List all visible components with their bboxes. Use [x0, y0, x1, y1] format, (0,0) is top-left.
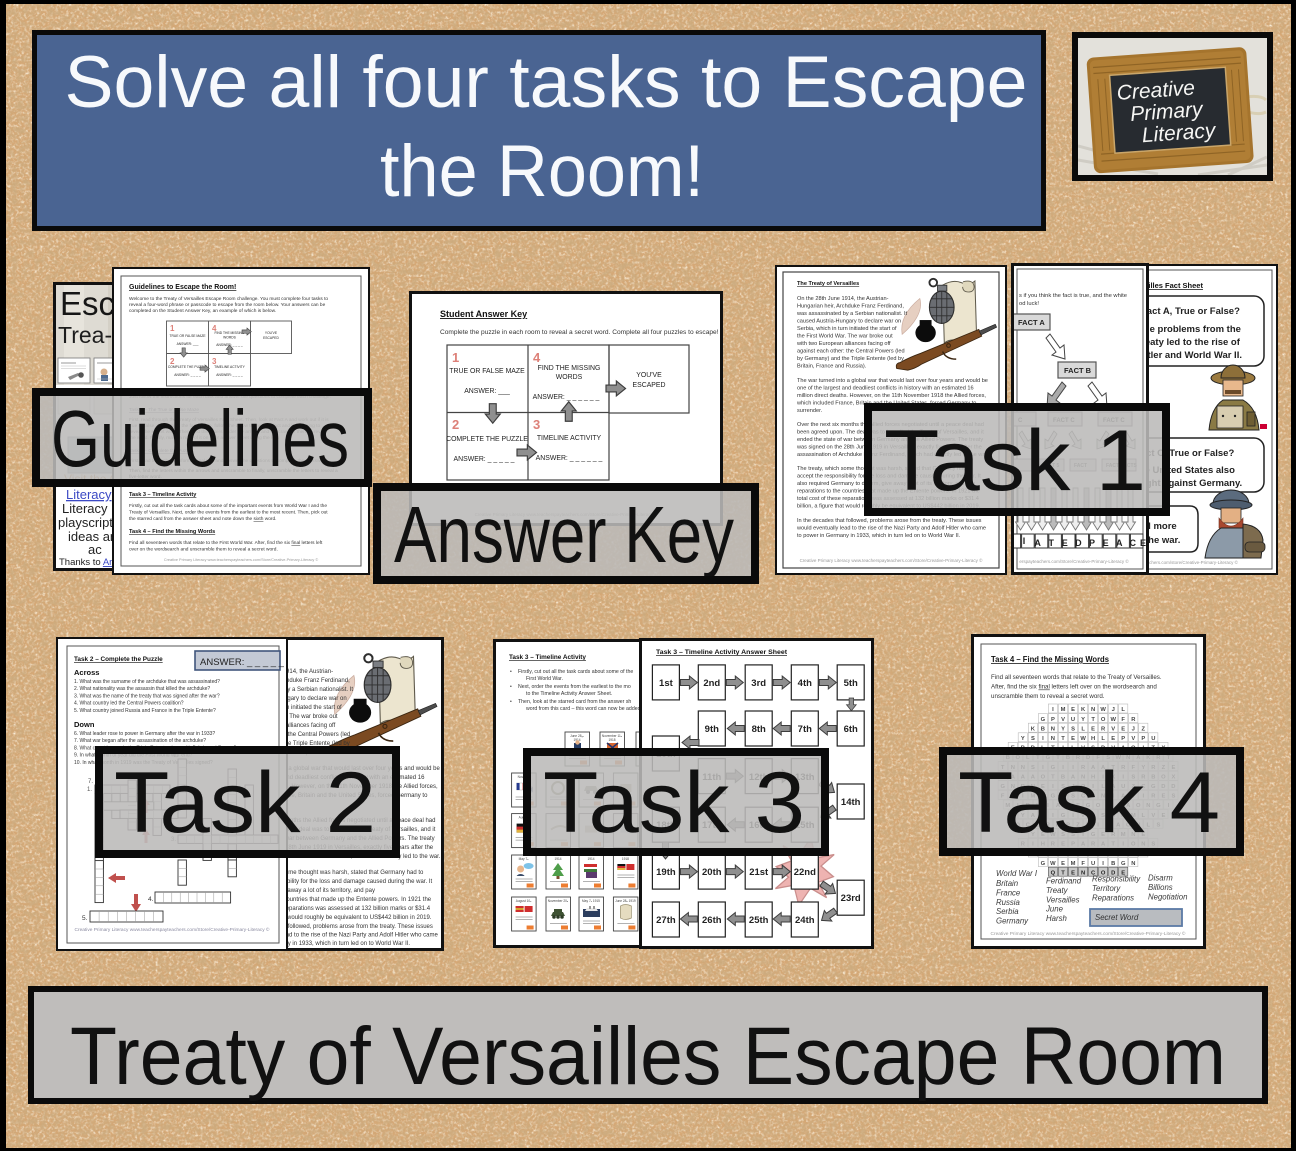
svg-text:Trea-: Trea-: [58, 322, 112, 348]
svg-text:would eventually lead to the r: would eventually lead to the rise of the…: [796, 526, 986, 532]
svg-text:May 7ₙ: May 7ₙ: [519, 857, 530, 861]
svg-text:1914: 1914: [587, 857, 594, 861]
svg-text:s if you think the fact is tru: s if you think the fact is true, and the…: [1019, 293, 1127, 299]
svg-text:D: D: [1075, 538, 1082, 548]
svg-text:to the Timeline Activity Answe: to the Timeline Activity Answer Sheet.: [526, 691, 612, 697]
svg-text:6th: 6th: [844, 724, 858, 735]
svg-text:Student Answer Key: Student Answer Key: [440, 309, 527, 319]
svg-text:Guidelines to Escape the Room!: Guidelines to Escape the Room!: [129, 284, 236, 291]
svg-text:Negotiation: Negotiation: [1148, 893, 1187, 902]
svg-text:7. What war began after the: 7. What war began after the assassinatio…: [74, 738, 206, 744]
svg-text:TIMELINE ACTIVITY: TIMELINE ACTIVITY: [537, 435, 602, 442]
svg-text:Disarm: Disarm: [1148, 874, 1173, 883]
svg-text:May 7ₙ 1915: May 7ₙ 1915: [582, 899, 600, 903]
svg-text:W: W: [1100, 707, 1106, 713]
svg-text:E: E: [1061, 861, 1065, 867]
svg-text:Creative Primary Literacy www.: Creative Primary Literacy www.teacherspa…: [800, 557, 984, 563]
svg-text:3rd: 3rd: [751, 678, 766, 689]
svg-text:A: A: [1034, 538, 1041, 548]
svg-text:6. What leader rose to power: 6. What leader rose to power in Germany …: [74, 731, 215, 737]
svg-text:P: P: [1141, 736, 1145, 742]
svg-text:B: B: [1111, 861, 1115, 867]
svg-text:the First World War. The war b: the First World War. The war broke out: [797, 334, 893, 340]
svg-text:Reparations: Reparations: [1092, 894, 1134, 903]
svg-text:d more: d more: [1145, 521, 1177, 532]
svg-text:od luck!: od luck!: [1019, 301, 1039, 307]
svg-text:E: E: [1071, 736, 1075, 742]
svg-text:with two European alliances fa: with two European alliances facing off: [796, 341, 891, 347]
svg-text:against each other: the Centra: against each other: the Central Powers (…: [797, 349, 905, 355]
svg-text:ANSWER: _ _ _ _ _: ANSWER: _ _ _ _ _: [454, 456, 515, 463]
svg-text:Esc: Esc: [60, 285, 115, 322]
svg-text:W: W: [1080, 736, 1086, 742]
svg-text:Treaty of Versailles. Next, or: Treaty of Versailles. Next, order the ev…: [129, 510, 328, 516]
svg-text:In the decades that followed,: In the decades that followed, problems a…: [797, 518, 982, 524]
svg-text:TRUE OR FALSE MAZE: TRUE OR FALSE MAZE: [169, 334, 206, 338]
svg-text:FIND THE MISSING: FIND THE MISSING: [538, 365, 601, 372]
svg-text:T: T: [1048, 538, 1054, 548]
svg-text:ANSWER: _ _ _ _ _ _: ANSWER: _ _ _ _ _ _: [536, 455, 603, 462]
svg-text:Britain, France and Russia).: Britain, France and Russia).: [797, 364, 867, 370]
svg-text:N: N: [1091, 707, 1095, 713]
svg-text:Task 2: Task 2: [114, 755, 376, 850]
svg-text:W: W: [1110, 717, 1116, 723]
svg-text:Complete the puzzle in each ro: Complete the puzzle in each room to reve…: [440, 329, 719, 336]
svg-text:Russia: Russia: [996, 898, 1020, 907]
svg-text:Territory: Territory: [1092, 884, 1121, 893]
svg-text:•: •: [510, 669, 512, 675]
svg-text:August 10ₙ: August 10ₙ: [516, 899, 532, 903]
svg-text:E: E: [1140, 538, 1146, 548]
svg-text:unscramble them to reveal a se: unscramble them to reveal a secret word.: [991, 693, 1105, 700]
svg-text:25th: 25th: [749, 915, 769, 926]
svg-text:over on the wordsearch and uns: over on the wordsearch and unscramble th…: [129, 547, 278, 553]
svg-text:Task 1: Task 1: [884, 413, 1146, 508]
svg-text:On the 28th June 1914, the Aus: On the 28th June 1914, the Austrian-: [797, 296, 889, 302]
svg-text:to power in Germany in 1933, w: to power in Germany in 1933, which in tu…: [797, 533, 961, 539]
svg-text:L: L: [1081, 726, 1085, 732]
svg-text:N: N: [1131, 861, 1135, 867]
svg-text:Billions: Billions: [1148, 883, 1173, 892]
svg-text:P: P: [1051, 717, 1055, 723]
svg-text:FACT B: FACT B: [1064, 366, 1092, 375]
svg-text:ANSWER: _ _ _ _ _: ANSWER: _ _ _ _ _: [200, 657, 285, 668]
svg-text:T: T: [1061, 870, 1065, 876]
svg-text:1: 1: [452, 350, 459, 365]
svg-text:3: 3: [533, 417, 540, 432]
svg-text:was assassinated by a Serbian: was assassinated by a Serbian nationalis…: [796, 311, 908, 317]
svg-text:5. What country joined Russi: 5. What country joined Russia and France…: [74, 708, 216, 714]
svg-text:Find all seventeen words that: Find all seventeen words that relate to …: [129, 540, 323, 546]
svg-text:I: I: [1023, 536, 1026, 546]
svg-text:Task 4: Task 4: [958, 755, 1220, 848]
svg-text:2: 2: [452, 417, 459, 432]
svg-text:1: 1: [170, 324, 175, 333]
svg-text:G: G: [1121, 861, 1126, 867]
svg-text:5.: 5.: [82, 915, 88, 922]
svg-text:ANSWER: ___: ANSWER: ___: [464, 388, 510, 395]
svg-text:21st: 21st: [749, 867, 769, 878]
svg-text:27th: 27th: [656, 915, 676, 926]
svg-text:•: •: [510, 699, 512, 705]
svg-text:WORDS: WORDS: [556, 374, 583, 381]
svg-text:million direct deaths. However: million direct deaths. However, on the 1…: [797, 393, 986, 399]
svg-text:The problems from the: The problems from the: [1138, 324, 1241, 335]
svg-text:June: June: [1045, 905, 1064, 914]
svg-text:S: S: [1071, 726, 1075, 732]
svg-text:Treaty of Versailles Escape Ro: Treaty of Versailles Escape Room: [70, 1011, 1226, 1102]
svg-text:E: E: [1091, 726, 1095, 732]
svg-text:Task 3: Task 3: [543, 756, 805, 848]
svg-text:Serbia, which in turn initiate: Serbia, which in turn initiated the star…: [797, 326, 897, 332]
svg-text:Responsibility: Responsibility: [1092, 875, 1141, 884]
svg-text:N: N: [1081, 870, 1085, 876]
svg-text:U: U: [1151, 736, 1155, 742]
svg-text:one of the largest and deadlie: one of the largest and deadliest conflic…: [797, 386, 974, 392]
svg-text:Y: Y: [1061, 726, 1065, 732]
svg-text:The war turned into a global w: The war turned into a global war that wo…: [797, 378, 988, 384]
svg-text:1918: 1918: [608, 738, 615, 742]
svg-text:L: L: [1101, 736, 1105, 742]
svg-text:20th: 20th: [702, 867, 722, 878]
svg-text:22nd: 22nd: [794, 867, 816, 878]
svg-text:Task 3 – Timeline Activity: Task 3 – Timeline Activity: [509, 654, 586, 661]
svg-text:M: M: [1061, 707, 1066, 713]
svg-text:Task 3 – Timeline Activity Ans: Task 3 – Timeline Activity Answer Sheet: [656, 649, 788, 656]
svg-text:4.: 4.: [148, 896, 154, 903]
svg-text:Find all seventeen words that: Find all seventeen words that relate to …: [991, 674, 1162, 681]
svg-text:Fact A, True or False?: Fact A, True or False?: [1141, 306, 1240, 317]
svg-text:eachers.com/store/Creative-Pri: eachers.com/store/Creative-Primary-Liter…: [1144, 559, 1239, 565]
svg-text:V: V: [1111, 726, 1115, 732]
svg-text:The Treaty of Versailles: The Treaty of Versailles: [797, 281, 859, 287]
svg-text:FIND THE MISSING: FIND THE MISSING: [215, 331, 245, 335]
svg-text:WORDS: WORDS: [223, 336, 236, 340]
svg-text:Task 2 – Complete the Puzzle: Task 2 – Complete the Puzzle: [74, 656, 163, 663]
svg-text:T: T: [1091, 717, 1095, 723]
svg-text:E: E: [1121, 726, 1125, 732]
svg-text:Hitler and World War II.: Hitler and World War II.: [1138, 350, 1242, 361]
svg-text:caused Austria-Hungary to decl: caused Austria-Hungary to declare war on: [797, 319, 901, 325]
svg-text:B: B: [1041, 726, 1045, 732]
svg-text:23rd: 23rd: [841, 893, 861, 904]
svg-text:J: J: [1112, 707, 1115, 713]
svg-text:E: E: [1062, 538, 1068, 548]
svg-text:1918: 1918: [622, 857, 629, 861]
svg-text:4. What country led the Cent: 4. What country led the Central Powers c…: [74, 701, 184, 707]
svg-text:completed on the Student Answe: completed on the Student Answer Key, an …: [129, 308, 276, 314]
svg-text:H: H: [1091, 736, 1095, 742]
svg-text:ESCAPED: ESCAPED: [633, 382, 666, 389]
svg-text:•: •: [510, 684, 512, 690]
svg-text:M: M: [1071, 861, 1076, 867]
svg-text:24th: 24th: [795, 915, 815, 926]
svg-text:the starred card from the answ: the starred card from the answer sheet a…: [129, 516, 276, 522]
svg-text:26th: 26th: [702, 915, 722, 926]
svg-text:J: J: [1132, 726, 1135, 732]
svg-text:France: France: [996, 889, 1021, 898]
svg-text:surrender.: surrender.: [797, 408, 823, 414]
svg-text:P: P: [1121, 736, 1125, 742]
svg-text:8th: 8th: [752, 724, 766, 735]
svg-text:erspayteachers.com/Store/Creat: erspayteachers.com/Store/Creative-Primar…: [1019, 558, 1129, 564]
svg-text:G: G: [1041, 861, 1046, 867]
svg-text:F: F: [1121, 717, 1125, 723]
svg-text:Y: Y: [1021, 736, 1025, 742]
svg-text:Ferdinand: Ferdinand: [1046, 877, 1082, 886]
svg-text:Harsh: Harsh: [1046, 914, 1067, 923]
svg-text:Task 4 – Find the Missing Word: Task 4 – Find the Missing Words: [129, 529, 215, 535]
svg-text:19th: 19th: [656, 867, 676, 878]
svg-text:F: F: [1081, 861, 1085, 867]
svg-text:the war.: the war.: [1145, 535, 1180, 546]
svg-text:ANSWER: _ _ _ _: ANSWER: _ _ _ _: [174, 373, 201, 377]
svg-text:Y: Y: [1081, 717, 1085, 723]
svg-text:9th: 9th: [705, 724, 719, 735]
svg-text:World War I: World War I: [996, 869, 1038, 878]
svg-text:Firstly, cut out all the task: Firstly, cut out all the task cards abou…: [518, 669, 633, 675]
svg-text:Britain: Britain: [996, 879, 1018, 888]
svg-text:E: E: [1071, 870, 1075, 876]
svg-text:Solve all four tasks to Escape: Solve all four tasks to Escape: [65, 42, 1028, 123]
svg-text:YOU'VE: YOU'VE: [636, 372, 662, 379]
svg-text:Q: Q: [1051, 870, 1056, 876]
svg-text:G: G: [1041, 717, 1046, 723]
svg-text:Hungarian heir, Archduke Franz: Hungarian heir, Archduke Franz Ferdinand…: [797, 304, 904, 310]
svg-text:June 28ₙ 1919: June 28ₙ 1919: [615, 899, 636, 903]
svg-text:Guidelines: Guidelines: [51, 396, 349, 479]
svg-text:treaty led to the rise of: treaty led to the rise of: [1138, 337, 1241, 348]
svg-text:by Germany) and the Triple Ent: by Germany) and the Triple Entente (led …: [797, 356, 904, 362]
svg-text:November 20ₙ: November 20ₙ: [548, 899, 569, 903]
svg-text:ANSWER: _ _ _ _ _ _: ANSWER: _ _ _ _ _ _: [533, 394, 600, 401]
svg-text:COMPLETE THE PUZZLE: COMPLETE THE PUZZLE: [446, 436, 528, 443]
svg-text:ESCAPED: ESCAPED: [263, 336, 279, 340]
svg-text:TRUE OR FALSE MAZE: TRUE OR FALSE MAZE: [449, 368, 525, 375]
svg-text:1914: 1914: [554, 857, 561, 861]
svg-text:Z: Z: [1142, 726, 1146, 732]
svg-text:2. What nationality was the: 2. What nationality was the assassin tha…: [74, 686, 210, 692]
svg-text:4: 4: [533, 350, 541, 365]
svg-text:Down: Down: [74, 720, 95, 729]
svg-text:reveal a four-word phrase or p: reveal a four-word phrase or passcode to…: [129, 302, 326, 308]
svg-text:5th: 5th: [844, 678, 858, 689]
svg-text:TIMELINE ACTIVITY: TIMELINE ACTIVITY: [214, 365, 246, 369]
svg-text:V: V: [1061, 717, 1065, 723]
svg-text:Next, order the events from th: Next, order the events from the earliest…: [518, 684, 631, 690]
svg-text:P: P: [1089, 538, 1095, 548]
svg-text:Task 3 – Timeline Activity: Task 3 – Timeline Activity: [129, 492, 197, 498]
svg-text:Creative Primary Literacy www.: Creative Primary Literacy www.teacherspa…: [991, 930, 1186, 937]
svg-text:Creative Primary Literacy www.: Creative Primary Literacy www.teacherspa…: [75, 926, 270, 933]
svg-text:L: L: [1121, 707, 1125, 713]
svg-text:C: C: [1130, 538, 1137, 548]
svg-text:E: E: [1111, 736, 1115, 742]
svg-text:7.: 7.: [88, 779, 93, 785]
svg-text:E: E: [1071, 707, 1075, 713]
svg-text:W: W: [1050, 861, 1056, 867]
svg-text:ac: ac: [88, 542, 102, 557]
svg-text:After, find the six final lett: After, find the six final letters left o…: [991, 684, 1157, 691]
svg-text:Treaty: Treaty: [1046, 886, 1069, 895]
svg-text:Germany: Germany: [996, 917, 1029, 926]
svg-text:Across: Across: [74, 668, 99, 677]
svg-text:N: N: [1051, 726, 1055, 732]
svg-text:7th: 7th: [798, 724, 812, 735]
svg-text:Task 4 – Find the Missing Word: Task 4 – Find the Missing Words: [991, 655, 1110, 664]
svg-text:Answer Key: Answer Key: [394, 491, 734, 576]
svg-text:E: E: [1103, 538, 1109, 548]
svg-text:Versailles: Versailles: [1046, 896, 1080, 905]
svg-text:V: V: [1131, 736, 1135, 742]
svg-text:word from this card – this wor: word from this card – this word can now …: [526, 706, 641, 712]
svg-text:14th: 14th: [841, 797, 861, 808]
svg-text:S: S: [1031, 736, 1035, 742]
svg-text:1st: 1st: [659, 678, 674, 689]
svg-text:Serbia: Serbia: [996, 907, 1019, 916]
svg-text:U: U: [1091, 861, 1095, 867]
svg-text:N: N: [1051, 736, 1055, 742]
svg-text:A: A: [1116, 538, 1123, 548]
svg-text:Then, look at the starred card: Then, look at the starred card from the …: [518, 699, 631, 705]
svg-text:O: O: [1101, 717, 1106, 723]
svg-text:ANSWER: ___: ANSWER: ___: [177, 342, 199, 346]
svg-text:the Room!: the Room!: [380, 131, 704, 212]
svg-text:T: T: [1061, 736, 1065, 742]
svg-text:YOU'VE: YOU'VE: [265, 331, 278, 335]
svg-text:Creative Primary Literacy www.: Creative Primary Literacy www.teacherspa…: [164, 558, 319, 562]
svg-text:Firstly, cut out all the task: Firstly, cut out all the task cards abou…: [129, 503, 327, 509]
svg-text:Literacy: Literacy: [66, 487, 112, 502]
svg-text:First World War.: First World War.: [526, 676, 563, 682]
svg-text:1. What was the surname of t: 1. What was the surname of the archduke …: [74, 679, 220, 685]
svg-text:Welcome to the Treaty of Versa: Welcome to the Treaty of Versailles Esca…: [129, 296, 328, 302]
svg-text:2nd: 2nd: [703, 678, 720, 689]
svg-text:3. What was the name of the: 3. What was the name of the treaty that …: [74, 693, 220, 699]
svg-text:Secret Word: Secret Word: [1095, 913, 1139, 922]
svg-text:FACT A: FACT A: [1018, 318, 1045, 327]
svg-text:U: U: [1071, 717, 1075, 723]
svg-text:1.: 1.: [87, 787, 92, 793]
svg-text:ANSWER: _ _ _ _: ANSWER: _ _ _ _: [216, 373, 243, 377]
svg-text:4th: 4th: [798, 678, 812, 689]
